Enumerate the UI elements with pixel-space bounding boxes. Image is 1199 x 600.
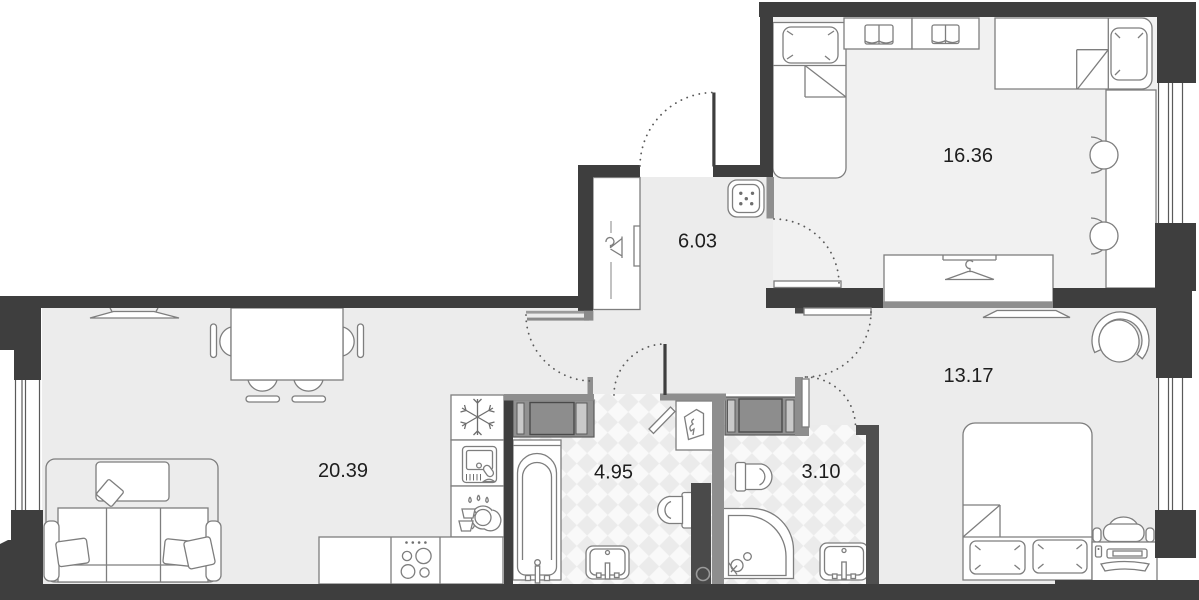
- svg-text:20.39: 20.39: [318, 460, 368, 482]
- svg-text:16.36: 16.36: [943, 145, 993, 167]
- svg-text:4.95: 4.95: [594, 462, 633, 484]
- svg-text:13.17: 13.17: [943, 365, 993, 387]
- svg-text:3.10: 3.10: [802, 461, 841, 483]
- svg-text:6.03: 6.03: [678, 231, 717, 253]
